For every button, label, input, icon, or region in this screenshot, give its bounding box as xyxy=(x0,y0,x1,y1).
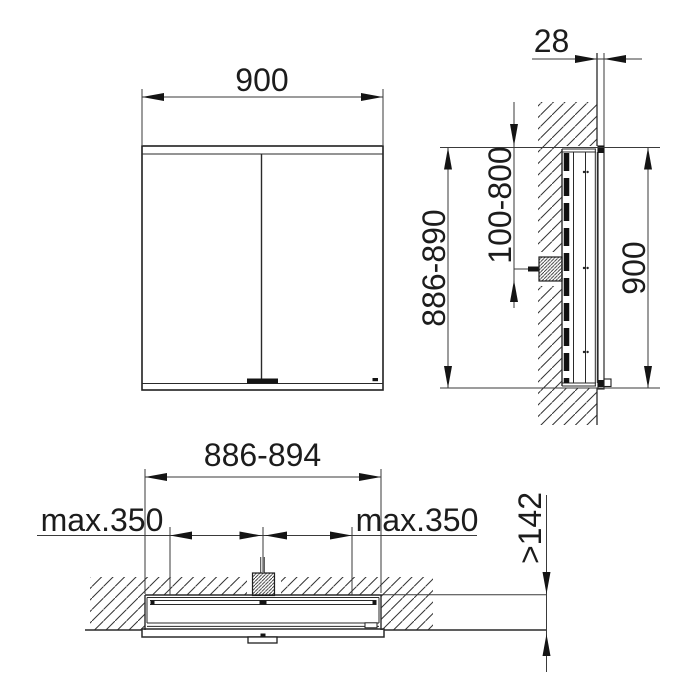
wall-hatch-top xyxy=(538,102,597,146)
arrowhead-down xyxy=(444,366,452,388)
handle-bar xyxy=(247,379,278,384)
dim-label-fixing-right: max.350 xyxy=(356,502,479,538)
technical-drawing-page: 900 xyxy=(0,0,700,700)
dim-label-mains-position-range: 100-800 xyxy=(482,146,518,263)
dim-side-recess-height: 886-890 xyxy=(416,148,452,389)
dim-label-plan-recess-depth: >142 xyxy=(512,492,548,564)
mirror-door-profile xyxy=(598,146,604,389)
dim-label-fixing-left: max.350 xyxy=(41,502,164,538)
arrowhead-up xyxy=(444,148,452,170)
wall-hatch-right xyxy=(381,577,433,630)
door-handle-profile xyxy=(604,379,611,387)
dim-label-front-width: 900 xyxy=(235,62,288,98)
cabinet-front-outline xyxy=(142,146,383,390)
mains-plug-pins xyxy=(528,267,539,272)
carcass-front-lines xyxy=(595,149,597,386)
dim-label-side-cabinet-height: 900 xyxy=(616,241,652,294)
mains-connection-box xyxy=(539,257,562,281)
plan-view: 886-894 max.350 max.350 >142 xyxy=(37,437,551,672)
arrowhead-left xyxy=(142,93,164,101)
arrowhead-right xyxy=(330,532,352,540)
arrowhead-left xyxy=(145,473,167,481)
dim-label-side-protrusion: 28 xyxy=(534,23,570,59)
switch-mark xyxy=(373,378,379,381)
dim-mains-position-range: 100-800 xyxy=(482,102,518,308)
carcass-front-lines xyxy=(147,623,379,626)
wall-hatch-bottom xyxy=(538,388,597,425)
arrowhead-left xyxy=(170,532,192,540)
arrowhead-down xyxy=(543,572,551,594)
rail-fixing-right xyxy=(373,601,377,605)
handle-bar-plan xyxy=(248,637,277,643)
arrowhead-up xyxy=(510,280,518,302)
dim-plan-recess-depth: >142 xyxy=(512,492,551,672)
arrowhead-right xyxy=(359,473,381,481)
arrowhead-center-right xyxy=(240,532,262,540)
switch-detail xyxy=(365,623,377,628)
arrowhead-left xyxy=(604,55,626,63)
arrowhead-center-left xyxy=(265,532,287,540)
dim-side-protrusion: 28 xyxy=(532,23,642,63)
dim-side-cabinet-height: 900 xyxy=(616,148,652,389)
dim-label-plan-recess-width: 886-894 xyxy=(204,437,321,473)
arrowhead-up xyxy=(543,634,551,656)
wall-hatch-left xyxy=(90,577,145,630)
dim-front-width: 900 xyxy=(142,62,383,145)
door-bottom-profile xyxy=(598,380,604,387)
arrowhead-down xyxy=(644,366,652,388)
rail-fixing-left xyxy=(151,601,155,605)
rail-fixing-center xyxy=(260,601,267,605)
front-view: 900 xyxy=(142,62,383,390)
arrowhead-up xyxy=(644,148,652,170)
dim-label-side-recess-height: 886-890 xyxy=(416,209,452,326)
side-view: 28 886-890 100-800 900 xyxy=(416,23,660,425)
arrowhead-down xyxy=(510,124,518,146)
mains-connection-box-plan xyxy=(253,573,275,596)
installation-drawing: 900 xyxy=(0,0,700,700)
arrowhead-right xyxy=(361,93,383,101)
arrowhead-right xyxy=(575,55,597,63)
